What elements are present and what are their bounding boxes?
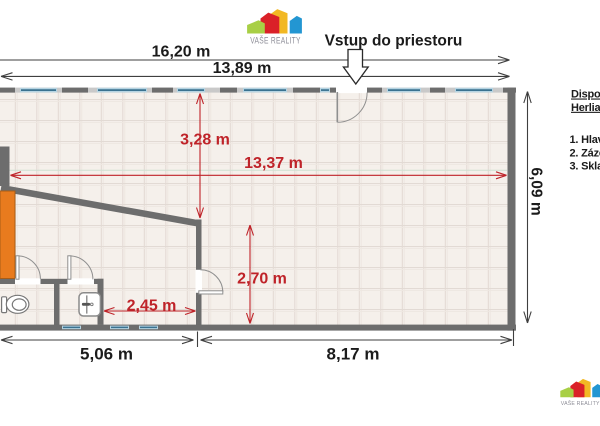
svg-text:2. Zázemie: 2. Zázemie [570, 147, 600, 159]
svg-text:Dispozícia:: Dispozícia: [571, 89, 600, 101]
svg-text:2,70 m: 2,70 m [237, 271, 287, 288]
svg-text:6,09 m: 6,09 m [528, 167, 545, 215]
svg-text:Herlianska: Herlianska [571, 102, 600, 114]
svg-text:3. Sklad: 3. Sklad [570, 161, 600, 173]
svg-text:5,06 m: 5,06 m [80, 345, 133, 364]
svg-text:3,28 m: 3,28 m [180, 132, 230, 149]
svg-text:VAŠE REALITY: VAŠE REALITY [250, 36, 301, 46]
svg-text:2,45 m: 2,45 m [127, 298, 177, 315]
svg-text:8,17 m: 8,17 m [327, 345, 380, 364]
svg-text:Vstup do priestoru: Vstup do priestoru [325, 32, 463, 49]
svg-text:VAŠE REALITY: VAŠE REALITY [561, 400, 600, 407]
svg-text:13,37 m: 13,37 m [244, 155, 303, 172]
svg-text:1. Hlavný priestor: 1. Hlavný priestor [570, 134, 600, 146]
svg-text:13,89 m: 13,89 m [213, 60, 272, 77]
svg-text:16,20 m: 16,20 m [152, 44, 211, 61]
